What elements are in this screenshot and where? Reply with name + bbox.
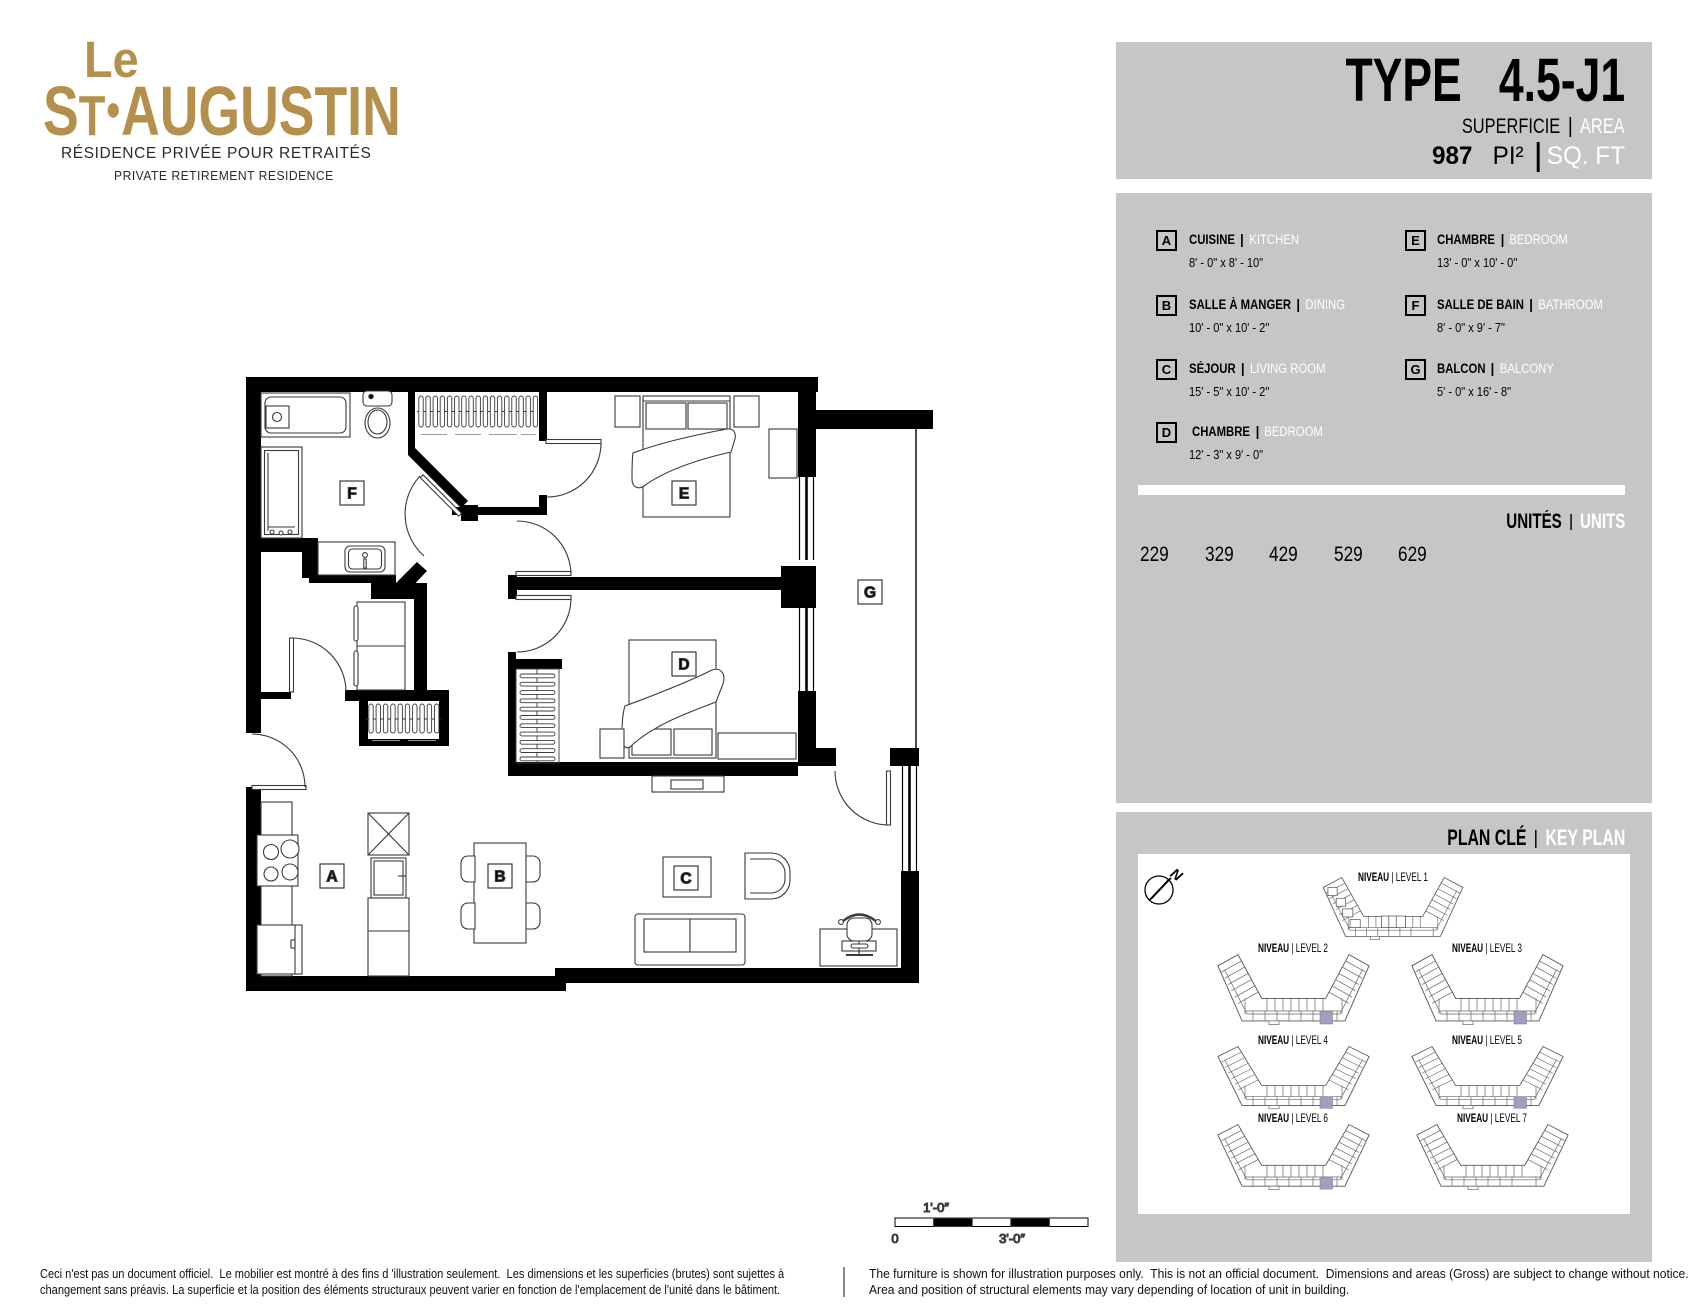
svg-text:NIVEAU | LEVEL 4: NIVEAU | LEVEL 4 — [1258, 1035, 1328, 1047]
svg-text:D: D — [678, 657, 689, 674]
svg-text:NIVEAU | LEVEL 6: NIVEAU | LEVEL 6 — [1258, 1113, 1328, 1125]
svg-text:NIVEAU | LEVEL 1: NIVEAU | LEVEL 1 — [1358, 872, 1428, 884]
svg-text:C: C — [680, 871, 691, 888]
svg-text:A: A — [326, 869, 337, 886]
svg-text:0: 0 — [891, 1231, 898, 1246]
svg-text:F: F — [347, 486, 356, 503]
svg-text:3'-0″: 3'-0″ — [999, 1231, 1025, 1246]
svg-text:NIVEAU | LEVEL 5: NIVEAU | LEVEL 5 — [1452, 1035, 1522, 1047]
svg-text:NIVEAU | LEVEL 2: NIVEAU | LEVEL 2 — [1258, 943, 1328, 955]
svg-text:NIVEAU | LEVEL 7: NIVEAU | LEVEL 7 — [1457, 1113, 1527, 1125]
svg-text:NIVEAU | LEVEL 3: NIVEAU | LEVEL 3 — [1452, 943, 1522, 955]
svg-text:G: G — [864, 585, 876, 602]
svg-text:E: E — [679, 486, 689, 503]
svg-text:1'-0″: 1'-0″ — [923, 1200, 949, 1215]
svg-text:B: B — [494, 869, 505, 886]
svg-text:N: N — [1167, 866, 1185, 885]
